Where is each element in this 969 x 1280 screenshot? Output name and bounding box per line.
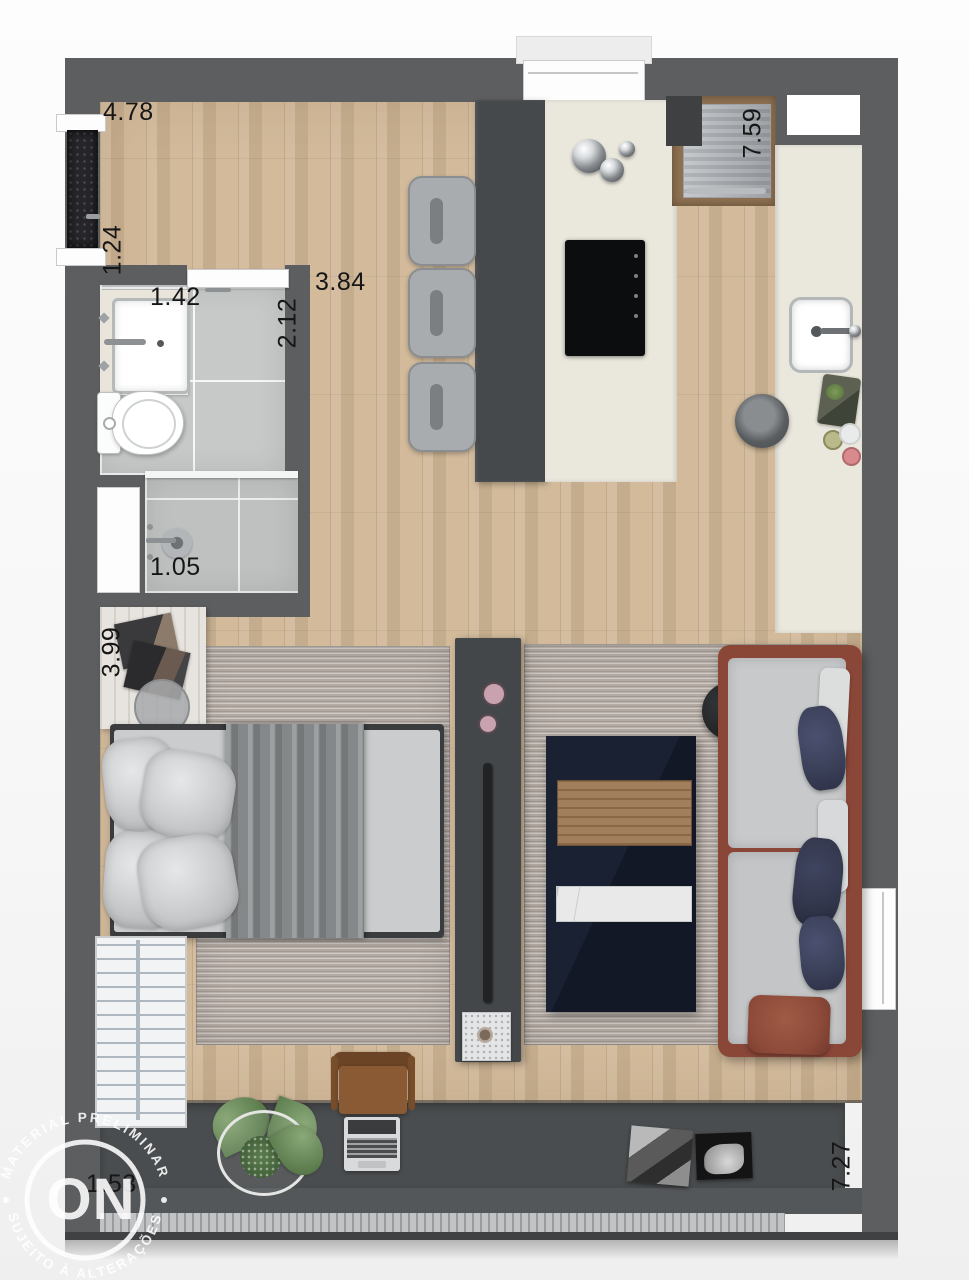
sink-faucet	[104, 339, 146, 345]
watermark-dot-right	[161, 1197, 167, 1203]
stool-handle-slot	[430, 198, 443, 244]
console-decor-plate	[478, 714, 498, 734]
cooktop-knob	[634, 274, 638, 278]
sink-faucet-knob	[849, 325, 861, 337]
bar-stool	[408, 362, 476, 452]
dimension-label-bedroom-wall: 3.99	[98, 627, 127, 678]
watermark-dot-left	[3, 1197, 9, 1203]
cooktop-knob	[634, 294, 638, 298]
dimension-label-hallway-width: 3.84	[315, 268, 366, 297]
table-marble-tray	[556, 886, 692, 922]
stool-handle-slot	[430, 384, 443, 430]
cooktop-knob	[634, 314, 638, 318]
bathroom-door	[187, 269, 289, 288]
kitchen-island	[475, 100, 545, 482]
stool-handle-slot	[430, 290, 443, 336]
coffee-table	[546, 736, 696, 1012]
dimension-label-entry-depth: 1.24	[99, 225, 128, 276]
desk-chair-arm	[408, 1056, 415, 1110]
bar-stool	[408, 176, 476, 266]
shower-glass-screen	[145, 471, 298, 478]
living-window-frame-line	[882, 892, 884, 1004]
watermark: MATERIAL PRELIMINAR SUJEITO À ALTERAÇÕES…	[0, 1045, 240, 1280]
fridge-handle	[686, 188, 766, 194]
plate-red	[842, 447, 861, 466]
desk-chair-arm	[331, 1056, 338, 1110]
dimension-label-shower-width: 1.05	[150, 553, 201, 582]
top-right-window	[787, 95, 860, 135]
plate-white	[839, 423, 861, 445]
dimension-label-balcony-run: 7.27	[828, 1141, 857, 1192]
watermark-logo-text: ON	[47, 1167, 136, 1232]
laptop-trackpad	[358, 1161, 386, 1168]
kitchen-window	[523, 60, 645, 104]
wall-niche	[97, 487, 140, 593]
desk-chair-seat	[339, 1066, 407, 1114]
laptop-screen	[348, 1120, 396, 1134]
bar-stool	[408, 268, 476, 358]
entry-door-handle	[86, 214, 100, 219]
wall-bathroom-top-right	[287, 265, 310, 290]
toilet-flush-button	[103, 417, 116, 430]
living-window	[860, 888, 896, 1010]
sink-drain	[157, 340, 164, 347]
bathroom-sink	[112, 298, 190, 394]
dimension-label-bathroom-depth: 2.12	[274, 298, 303, 349]
throw-pillow-rust	[747, 995, 831, 1056]
decor-sphere	[619, 141, 635, 157]
decor-sphere	[600, 158, 624, 182]
kitchen-sink	[789, 297, 853, 373]
floor-plan: 4.78 1.24 1.42 2.12 3.84 7.59 1.05 3.99 …	[0, 0, 969, 1280]
herbs	[826, 384, 844, 400]
tv	[483, 763, 492, 1003]
photo-print	[627, 1125, 694, 1186]
range-hood	[666, 96, 702, 146]
dimension-label-kitchen-run: 7.59	[739, 108, 768, 159]
console-decor-plate	[482, 682, 506, 706]
dimension-label-bathroom-width: 1.42	[150, 283, 201, 312]
trash-bin	[735, 394, 789, 448]
cup	[477, 1027, 493, 1043]
cooktop	[565, 240, 645, 356]
photo-print-highlight	[703, 1143, 744, 1174]
dimension-label-top-width: 4.78	[103, 98, 154, 127]
wall-right	[862, 58, 898, 1232]
toilet-seat	[122, 399, 176, 449]
entry-door-mat	[67, 130, 98, 248]
duvet	[226, 724, 364, 938]
laptop-keyboard	[347, 1138, 397, 1158]
shower-arm	[146, 538, 176, 543]
cutting-board	[817, 374, 862, 429]
cooktop-knob	[634, 254, 638, 258]
bathroom-door-handle	[205, 288, 231, 292]
table-wood-tray	[557, 780, 692, 846]
kitchen-window-frame-line	[528, 72, 638, 74]
shower-valve-top	[147, 524, 153, 530]
